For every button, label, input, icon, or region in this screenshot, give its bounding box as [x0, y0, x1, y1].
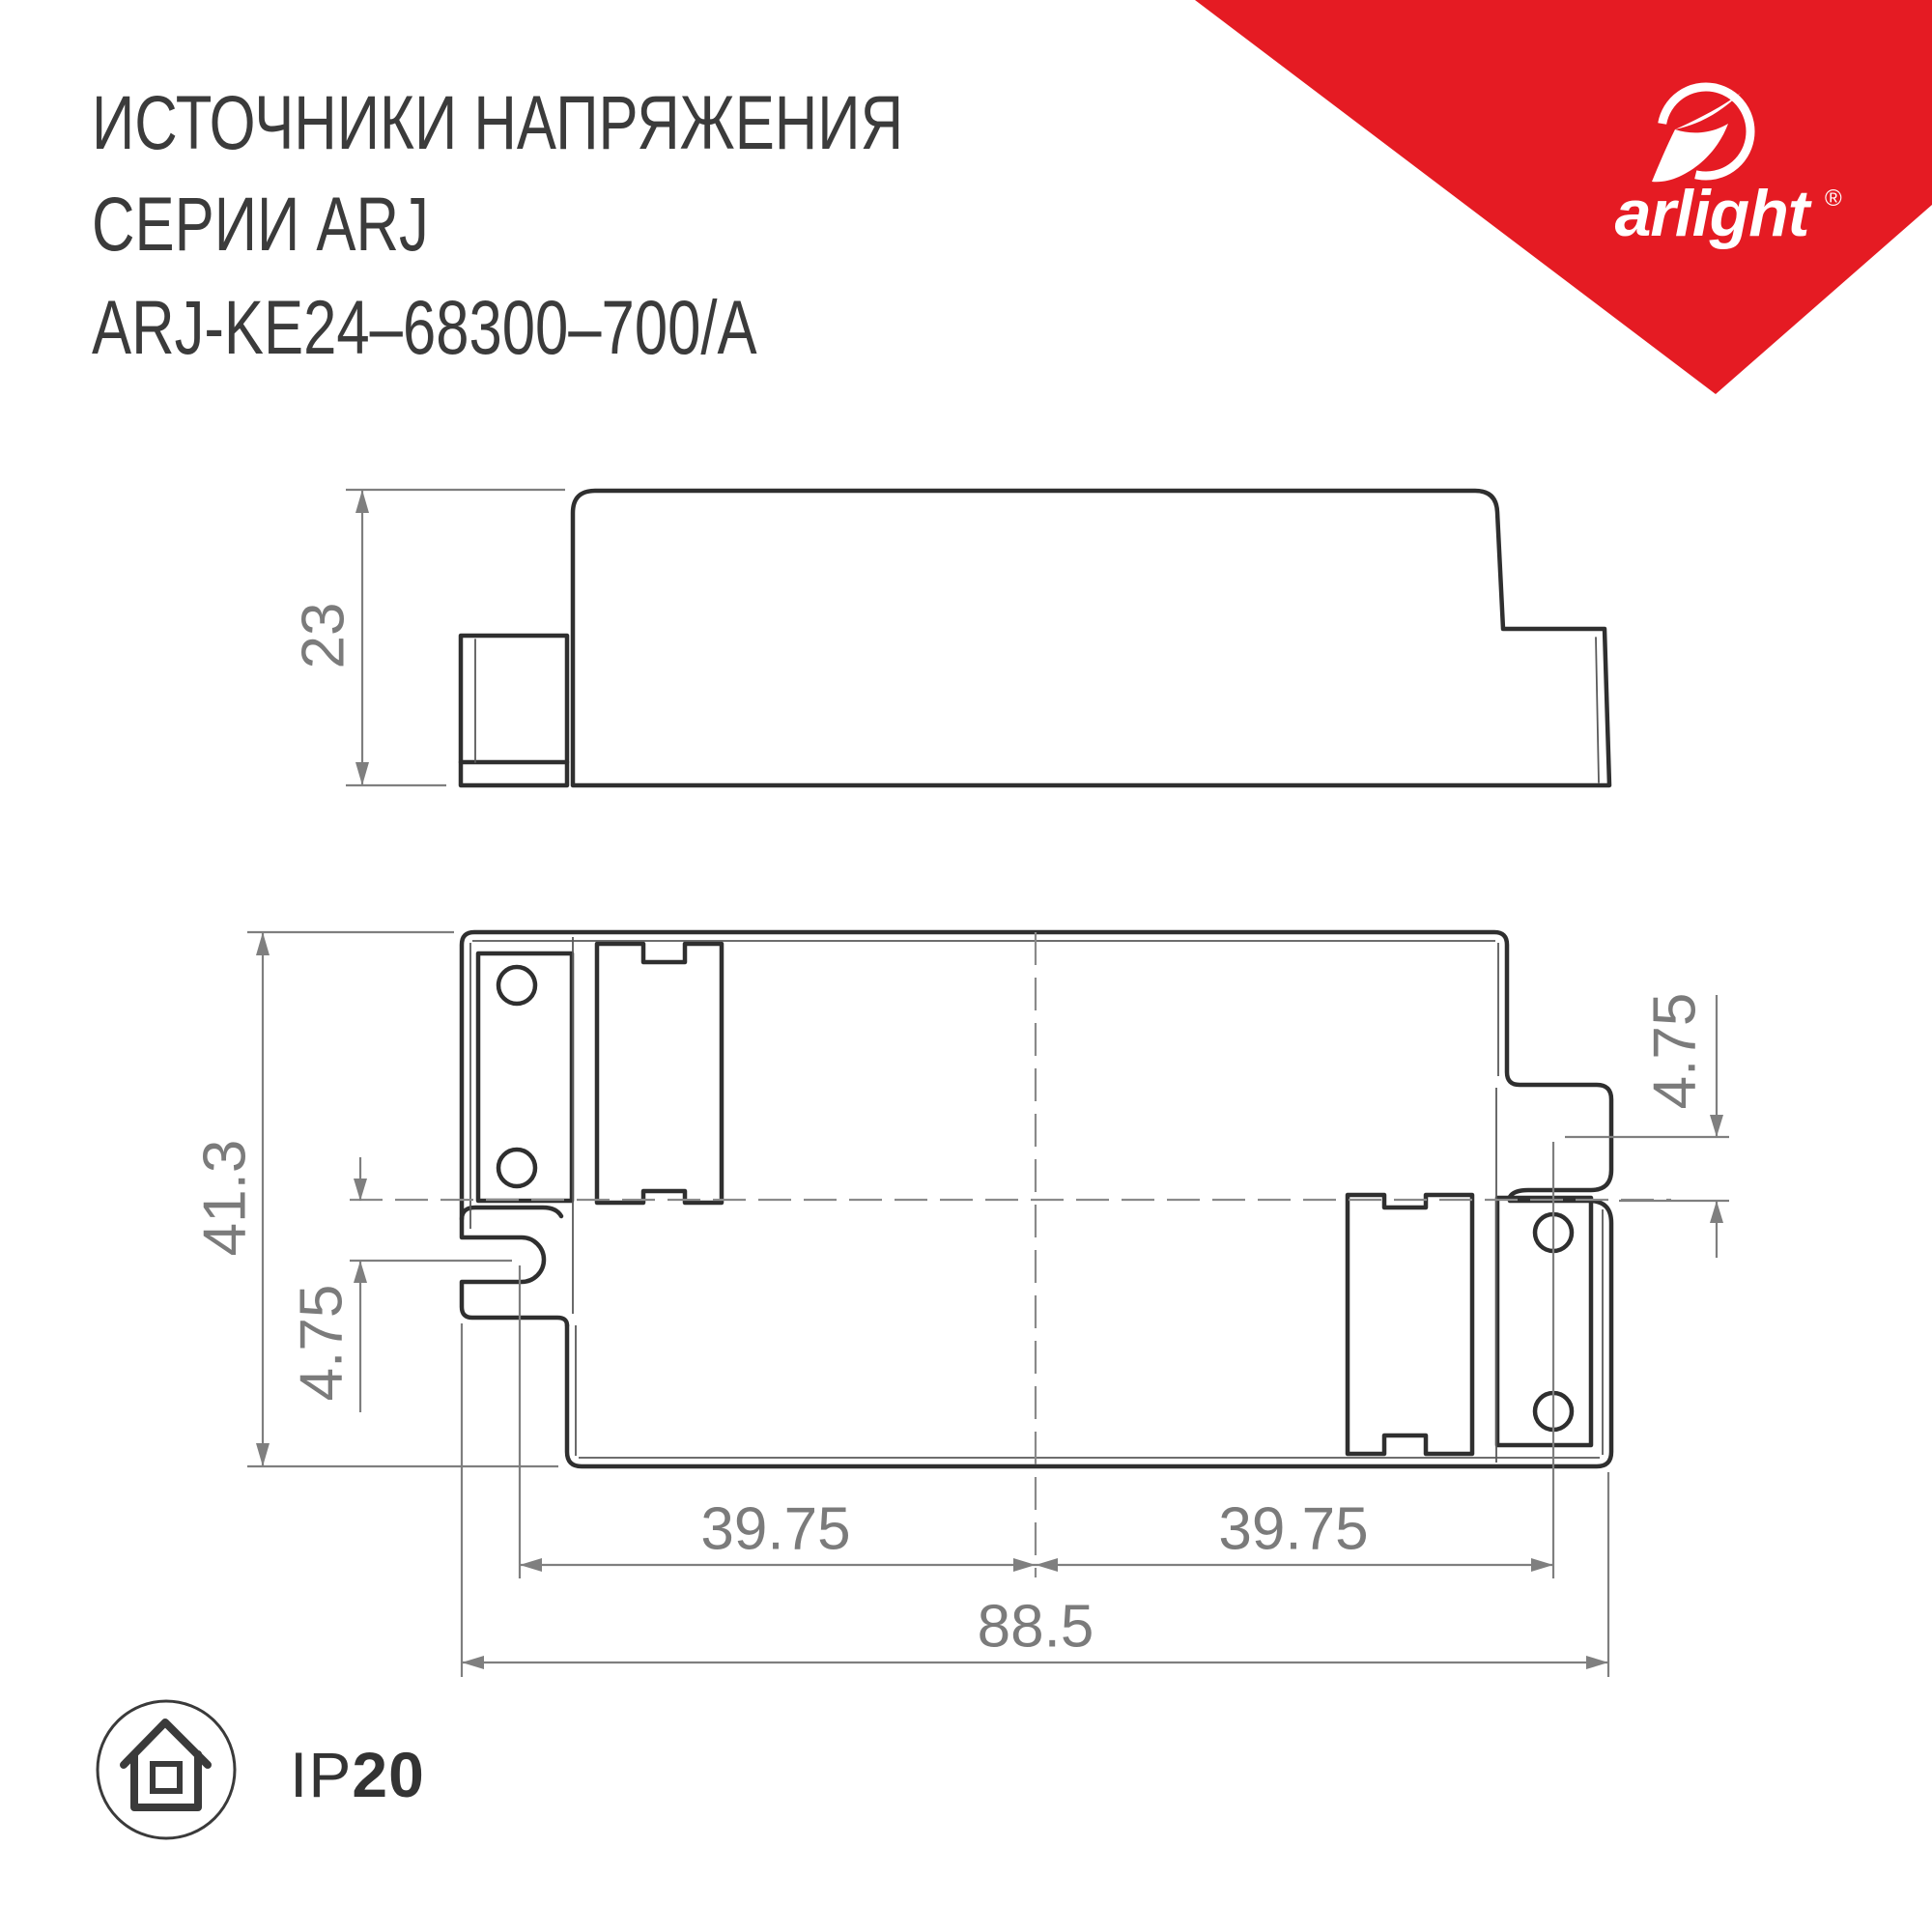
- dim-label-hole-span-right: 39.75: [1218, 1495, 1368, 1564]
- dim-label-ear-offset-right: 4.75: [1641, 993, 1710, 1110]
- page-title-line1: ИСТОЧНИКИ НАПРЯЖЕНИЯ: [92, 78, 903, 167]
- page-title-line2: СЕРИИ ARJ: [92, 180, 429, 269]
- bracket-top-left: [478, 953, 572, 1201]
- ip-rating-prefix: IP: [290, 1739, 352, 1810]
- screw-hole: [498, 1150, 535, 1186]
- side-view: [461, 491, 1609, 785]
- arlight-wordmark: arlight: [1567, 176, 1857, 251]
- dim-label-side-height: 23: [290, 603, 358, 669]
- ip-rating-value: 20: [352, 1739, 424, 1810]
- connector-bottom-right: [1348, 1195, 1472, 1454]
- side-view-body-outline: [573, 491, 1609, 785]
- ip20-house-icon: [98, 1701, 235, 1838]
- plan-base-outline: [567, 1201, 1611, 1466]
- connector-top-left: [597, 944, 722, 1203]
- dim-label-plan-height: 41.3: [191, 1140, 260, 1257]
- plan-left-ear-inner: [462, 1207, 561, 1219]
- side-view-right-inner-line: [1596, 638, 1599, 782]
- dimension-4-75-left: [350, 1157, 512, 1412]
- dim-label-hole-span-left: 39.75: [700, 1495, 850, 1564]
- dim-label-ear-offset-left: 4.75: [288, 1285, 356, 1402]
- screw-hole: [498, 967, 535, 1004]
- dim-label-overall-width: 88.5: [978, 1593, 1094, 1662]
- registered-trademark-symbol: ®: [1825, 185, 1842, 213]
- ip-rating: IP20: [290, 1738, 425, 1811]
- bracket-bottom-right: [1497, 1198, 1591, 1445]
- product-code: ARJ-KE24–68300–700/A: [92, 283, 757, 372]
- datasheet-page: ИСТОЧНИКИ НАПРЯЖЕНИЯ СЕРИИ ARJ ARJ-KE24–…: [0, 0, 1932, 1932]
